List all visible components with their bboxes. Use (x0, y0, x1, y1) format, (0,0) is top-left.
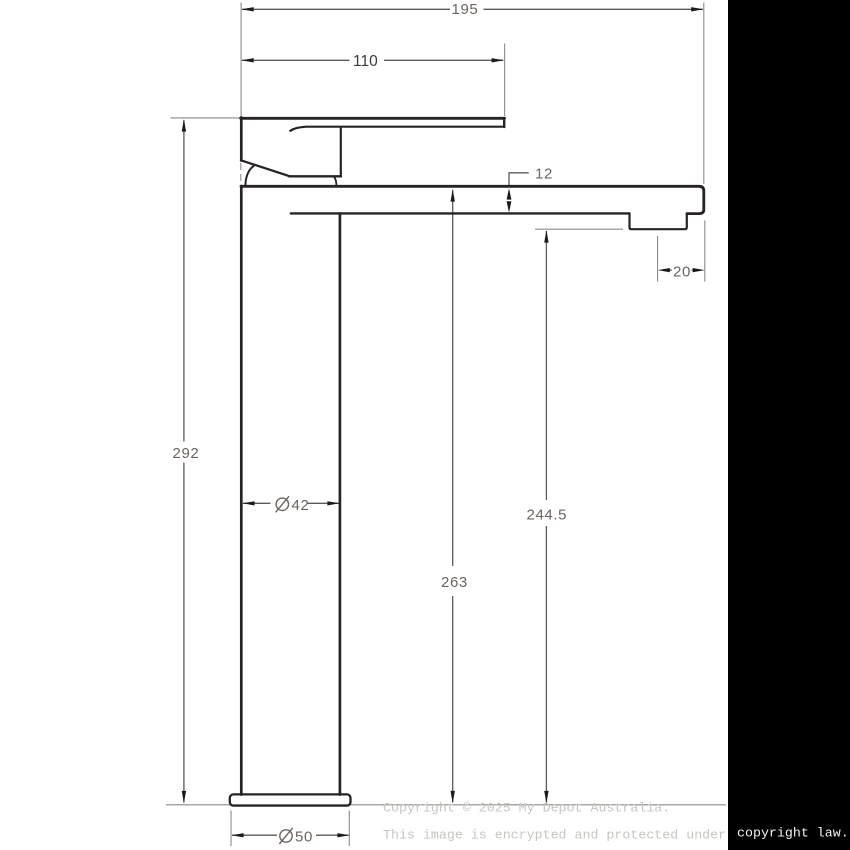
svg-text:110: 110 (353, 53, 378, 70)
svg-text:195: 195 (452, 1, 479, 18)
svg-text:244.5: 244.5 (527, 507, 568, 524)
svg-text:This image is encrypted and pr: This image is encrypted and protected un… (383, 828, 726, 843)
svg-text:copyright law.: copyright law. (737, 825, 849, 840)
svg-text:Copyright © 2025 My Depot Aust: Copyright © 2025 My Depot Australia. (383, 801, 670, 816)
svg-text:50: 50 (295, 829, 313, 846)
svg-text:20: 20 (673, 264, 691, 281)
svg-text:12: 12 (535, 166, 553, 183)
svg-text:42: 42 (292, 497, 310, 514)
svg-text:292: 292 (173, 445, 200, 462)
svg-text:263: 263 (441, 574, 468, 591)
